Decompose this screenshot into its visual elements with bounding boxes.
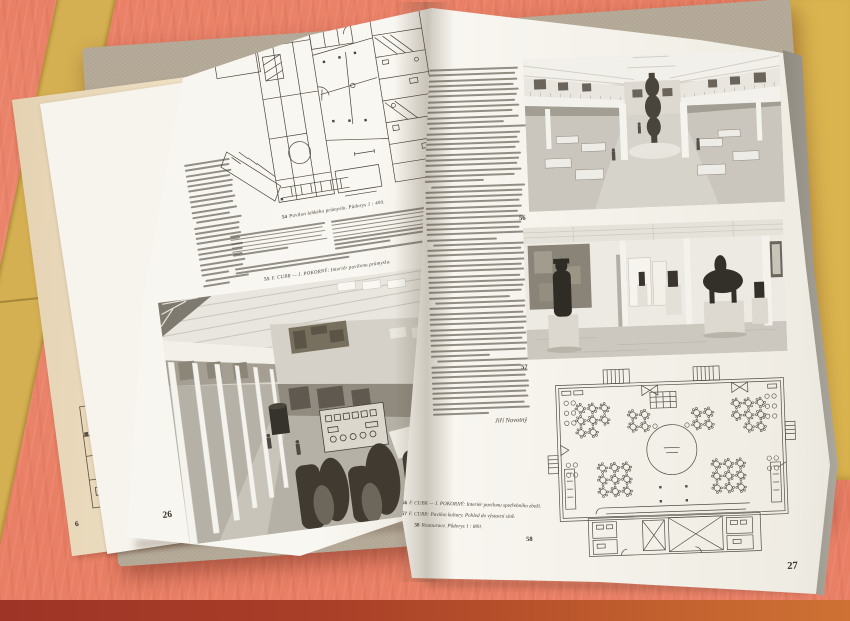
photo-56-consumer-goods-pavilion-interior	[523, 50, 785, 212]
photo-of-open-book-scene: 6	[0, 0, 850, 621]
figure-label-57: 57	[521, 364, 528, 371]
caption-55-number: 55	[264, 277, 270, 283]
page-number-27: 27	[787, 561, 798, 572]
figure-label-56: 56	[519, 215, 526, 222]
table-edge-strip-bottom	[0, 600, 850, 621]
figure-label-58: 58	[526, 536, 533, 543]
page-number-26: 26	[162, 510, 173, 521]
page-number-6: 6	[74, 519, 79, 528]
caption-54-number: 54	[282, 215, 288, 221]
book-gutter-shadow	[394, 2, 454, 582]
photo-57-culture-pavilion-exhibition-hall	[523, 219, 787, 360]
floor-plan-58-restaurant	[544, 361, 801, 562]
